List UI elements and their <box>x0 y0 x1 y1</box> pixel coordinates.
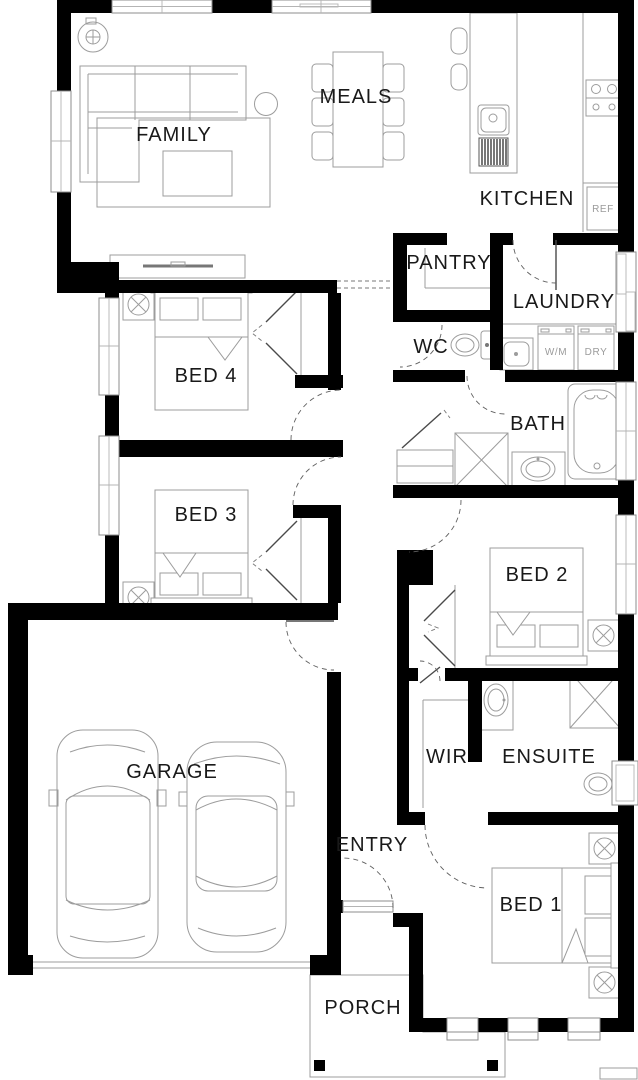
laundry-tub-icon <box>500 338 533 370</box>
room-label-meals: MEALS <box>320 86 393 108</box>
ceiling-light-icon <box>78 18 108 52</box>
room-label-family: FAMILY <box>136 124 212 146</box>
bed2-door-swing <box>409 500 461 552</box>
room-bed4 <box>123 284 301 410</box>
room-family <box>78 18 278 278</box>
room-label-bed2: BED 2 <box>506 564 569 586</box>
shower <box>455 433 508 487</box>
wc-toilet-icon <box>451 331 494 359</box>
side-table <box>255 93 278 116</box>
room-label-wc: WC <box>413 336 448 358</box>
window <box>616 382 636 480</box>
path-step <box>600 1068 637 1079</box>
ceiling-fan-icon <box>588 620 619 651</box>
room-label-wir: WIR <box>426 746 468 768</box>
ceiling-fan-icon <box>589 833 620 864</box>
room-label-ensuite: ENSUITE <box>502 746 596 768</box>
linen-cupboard <box>397 410 453 483</box>
window <box>272 0 371 13</box>
room-meals <box>312 52 404 167</box>
wardrobe <box>252 291 301 375</box>
room-label-bath: BATH <box>510 413 566 435</box>
room-label-bed1: BED 1 <box>500 894 563 916</box>
room-bath <box>455 384 625 487</box>
front-door-sill <box>343 901 393 912</box>
bed1-door-swing <box>425 825 488 888</box>
coffee-table <box>163 151 232 196</box>
room-label-bed4: BED 4 <box>175 365 238 387</box>
room-label-garage: GARAGE <box>126 761 218 783</box>
window <box>99 436 119 535</box>
room-label-laundry: LAUNDRY <box>513 291 615 313</box>
floor-plan: FAMILY MEALS KITCHEN PANTRY LAUNDRY WC B… <box>0 0 638 1080</box>
garage-door-panel <box>33 962 310 968</box>
window <box>99 298 119 395</box>
laundry-door <box>513 240 556 290</box>
room-label-entry: ENTRY <box>336 834 408 856</box>
bar-stools <box>451 28 467 90</box>
room-ensuite <box>479 672 625 798</box>
wardrobe <box>424 585 455 668</box>
appliance-label-fridge: REF <box>592 204 614 215</box>
window <box>612 761 638 805</box>
room-label-porch: PORCH <box>324 997 401 1019</box>
bed3-door-swing <box>293 457 341 505</box>
cooktop-icon <box>586 80 621 116</box>
kitchen-sink-icon <box>478 105 509 166</box>
garage-internal-door <box>286 621 334 670</box>
room-label-kitchen: KITCHEN <box>480 188 575 210</box>
appliance-label-dryer: DRY <box>585 347 608 358</box>
window <box>616 515 636 614</box>
window <box>112 0 212 13</box>
bulkhead-line <box>337 281 393 288</box>
room-label-pantry: PANTRY <box>406 252 491 274</box>
dining-table <box>333 52 383 167</box>
porch-post <box>314 1060 325 1071</box>
window <box>51 91 71 192</box>
bath-door-swing <box>467 376 505 414</box>
floor-plan-canvas: FAMILY MEALS KITCHEN PANTRY LAUNDRY WC B… <box>0 0 638 1080</box>
room-label-bed3: BED 3 <box>175 504 238 526</box>
wardrobe <box>252 518 301 603</box>
window <box>447 1018 600 1040</box>
tv-unit <box>110 255 245 278</box>
ceiling-fan-icon <box>123 289 154 320</box>
appliance-label-washer: W/M <box>545 347 567 358</box>
kitchen-bench <box>583 13 622 232</box>
bed <box>151 284 252 410</box>
sliding-door <box>616 252 636 332</box>
bed4-door-swing <box>291 390 341 440</box>
porch-post <box>487 1060 498 1071</box>
ceiling-fan-icon <box>589 967 620 998</box>
vanity-basin <box>512 452 565 487</box>
wir-door <box>420 661 440 683</box>
